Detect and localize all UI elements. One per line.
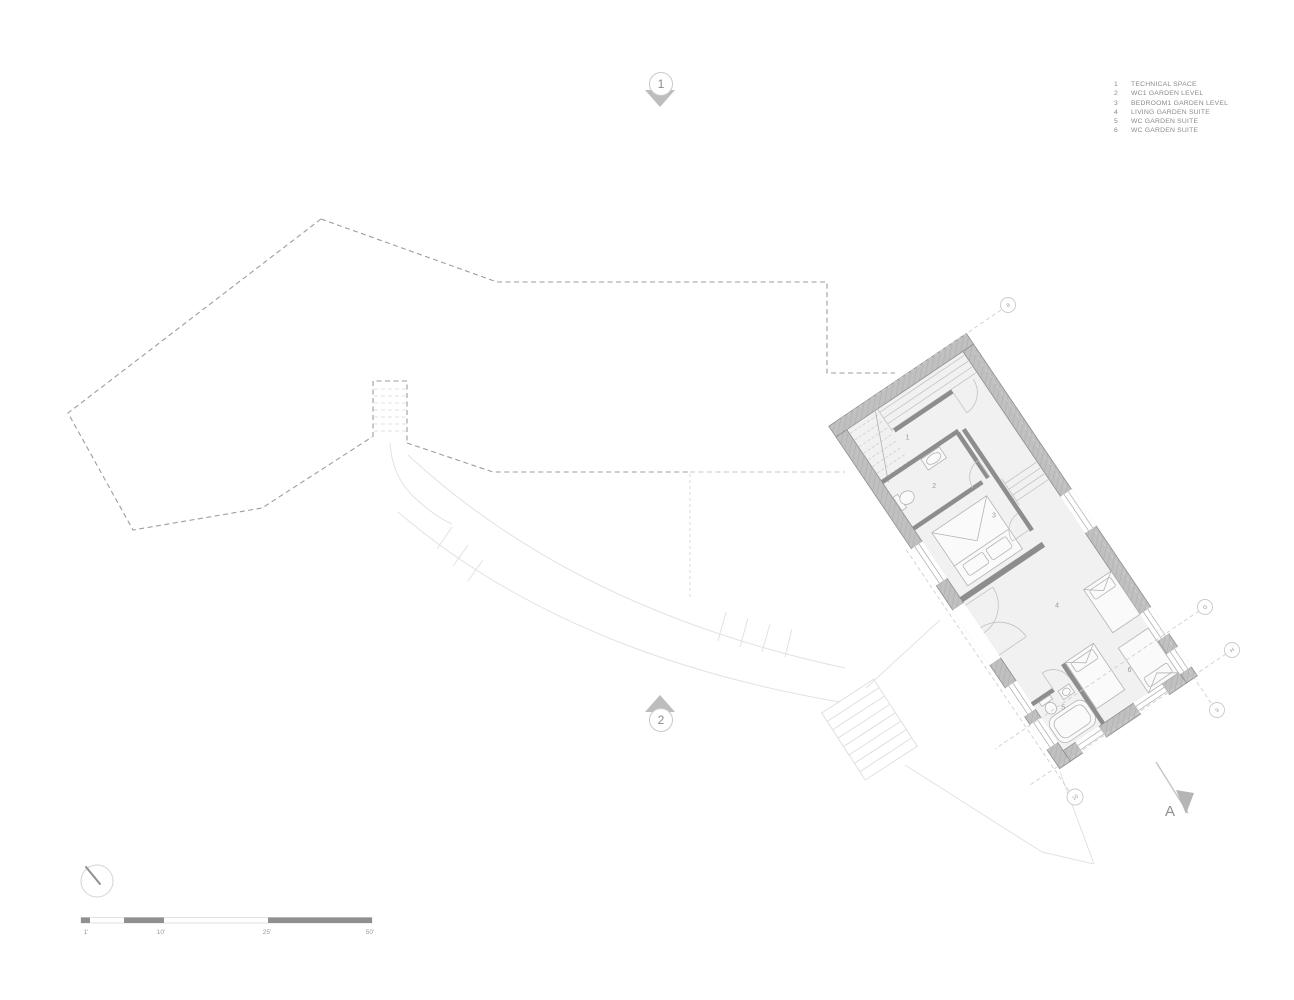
legend-item: 1 TECHNICAL SPACE — [1114, 80, 1228, 89]
grid-bubble-10: 10 — [1067, 789, 1083, 805]
elevation-label: A — [1165, 803, 1175, 820]
svg-text:50': 50' — [366, 929, 374, 936]
legend-num: 6 — [1114, 126, 1131, 135]
legend-item: 4 LIVING GARDEN SUITE — [1114, 108, 1228, 117]
site-outline-west — [68, 219, 372, 530]
building: 1 2 3 4 5 6 — [828, 333, 1198, 769]
legend-label: WC GARDEN SUITE — [1131, 117, 1198, 126]
site-outline-south — [407, 443, 690, 472]
exterior-stair — [822, 679, 918, 780]
legend-num: 2 — [1114, 89, 1131, 98]
legend-num: 1 — [1114, 80, 1131, 89]
section-marker-1: 1 — [641, 66, 679, 110]
floor-plan-canvas: 1 2 3 4 5 6 8 G — [0, 0, 1294, 1000]
legend-label: BEDROOM1 GARDEN LEVEL — [1131, 99, 1228, 108]
site-outline-north — [321, 219, 895, 373]
plan-drawing: 1 2 3 4 5 6 8 G — [0, 0, 1294, 1000]
site-stair-treads — [374, 389, 406, 431]
elevation-arrow — [1176, 790, 1194, 814]
room-label-5: 5 — [1061, 705, 1065, 712]
legend-item: 6 WC GARDEN SUITE — [1114, 126, 1228, 135]
legend-item: 5 WC GARDEN SUITE — [1114, 117, 1228, 126]
elevation-marker-a: A — [1156, 762, 1194, 820]
scale-bar-labels: 1' 10' 25' 50' — [84, 929, 375, 936]
svg-text:10': 10' — [157, 929, 165, 936]
room-label-4: 4 — [1055, 602, 1059, 609]
grid-bubble-H: H — [1225, 643, 1240, 658]
svg-text:25': 25' — [263, 929, 271, 936]
legend-label: LIVING GARDEN SUITE — [1131, 108, 1210, 117]
room-label-2: 2 — [932, 483, 936, 490]
legend-label: WC1 GARDEN LEVEL — [1131, 89, 1203, 98]
grid-bubble-8: 8 — [1001, 298, 1016, 313]
legend-num: 4 — [1114, 108, 1131, 117]
grid-bubble-9: 9 — [1210, 703, 1225, 718]
legend-num: 5 — [1114, 117, 1131, 126]
legend-num: 3 — [1114, 99, 1131, 108]
room-legend: 1 TECHNICAL SPACE 2 WC1 GARDEN LEVEL 3 B… — [1114, 80, 1228, 136]
section-number: 1 — [649, 72, 673, 96]
legend-label: TECHNICAL SPACE — [1131, 80, 1197, 89]
room-label-3: 3 — [992, 512, 996, 519]
room-label-6: 6 — [1128, 667, 1132, 674]
site-outline — [68, 219, 895, 597]
legend-item: 2 WC1 GARDEN LEVEL — [1114, 89, 1228, 98]
svg-text:1': 1' — [84, 929, 89, 936]
room-label-1: 1 — [906, 434, 910, 441]
legend-label: WC GARDEN SUITE — [1131, 126, 1198, 135]
section-marker-2: 2 — [641, 692, 679, 736]
site-stair-shaft — [373, 381, 407, 443]
legend-item: 3 BEDROOM1 GARDEN LEVEL — [1114, 99, 1228, 108]
north-indicator — [81, 865, 113, 897]
scale-bar: 1' 10' 25' 50' — [81, 918, 374, 937]
grid-bubble-G: G — [1198, 600, 1213, 615]
section-number: 2 — [649, 708, 673, 732]
